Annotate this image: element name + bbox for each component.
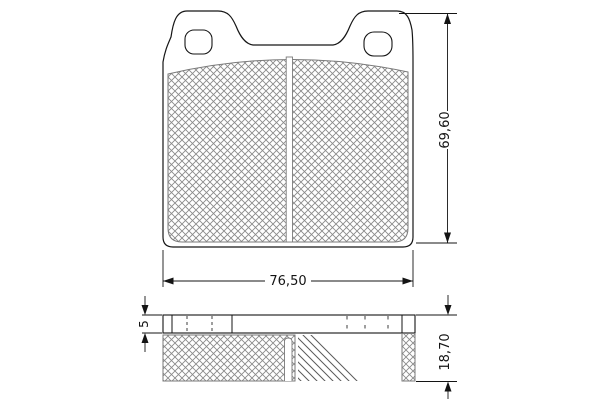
dim-label-plate-thickness: 5 xyxy=(137,320,151,328)
ear-hole-right xyxy=(364,32,392,56)
friction-end-block xyxy=(402,334,415,382)
dim-label-height: 69,60 xyxy=(438,111,453,148)
brake-pad-drawing: 76,50 69,60 xyxy=(0,0,600,400)
slot-notch xyxy=(285,338,293,381)
technical-drawing-canvas: 76,50 69,60 xyxy=(0,0,600,400)
dim-label-width: 76,50 xyxy=(269,274,306,289)
ear-hole-left xyxy=(185,30,212,54)
friction-block xyxy=(163,335,295,381)
center-slot xyxy=(286,57,292,242)
backplate-strip xyxy=(163,315,415,333)
dim-label-total-thickness: 18,70 xyxy=(438,333,453,370)
